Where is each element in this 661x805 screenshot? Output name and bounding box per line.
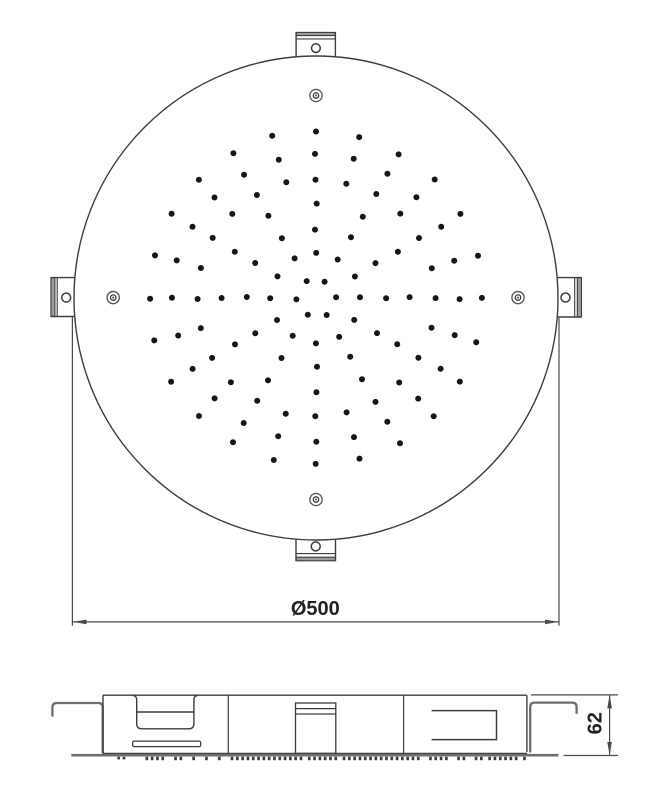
svg-text:Ø500: Ø500 (291, 598, 340, 620)
svg-text:62: 62 (584, 712, 606, 734)
